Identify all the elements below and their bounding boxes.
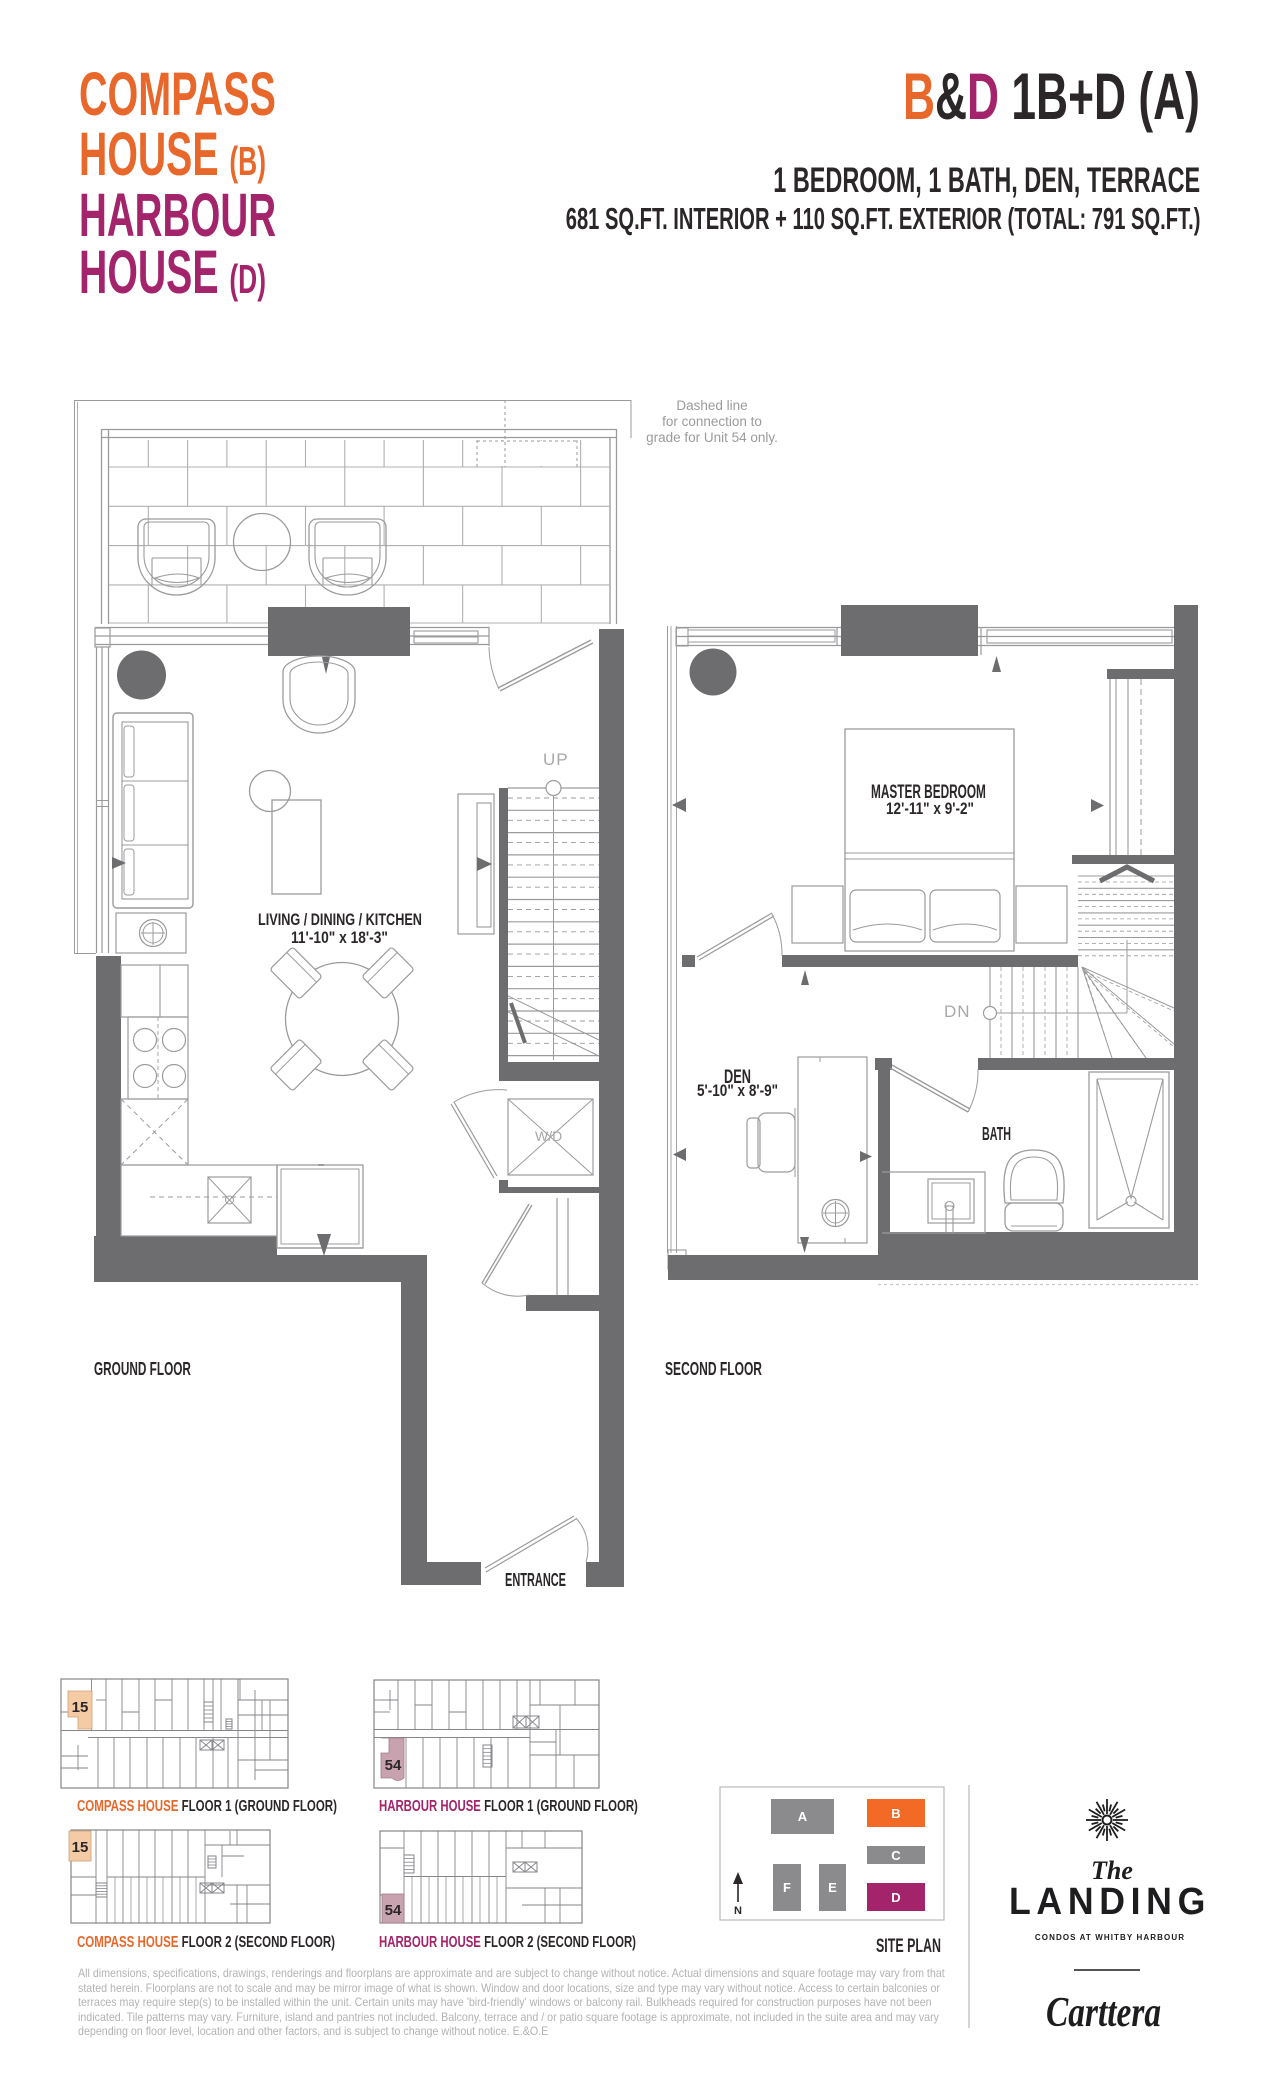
svg-text:15: 15 (72, 1699, 89, 1716)
svg-text:54: 54 (385, 1757, 402, 1774)
svg-text:B: B (891, 1806, 900, 1821)
svg-text:F: F (783, 1880, 791, 1895)
svg-text:C: C (891, 1848, 901, 1863)
svg-text:E: E (828, 1880, 837, 1895)
svg-text:15: 15 (72, 1839, 89, 1856)
svg-text:A: A (798, 1809, 808, 1824)
svg-text:N: N (734, 1905, 742, 1917)
svg-text:D: D (891, 1890, 900, 1905)
svg-text:54: 54 (385, 1902, 402, 1919)
